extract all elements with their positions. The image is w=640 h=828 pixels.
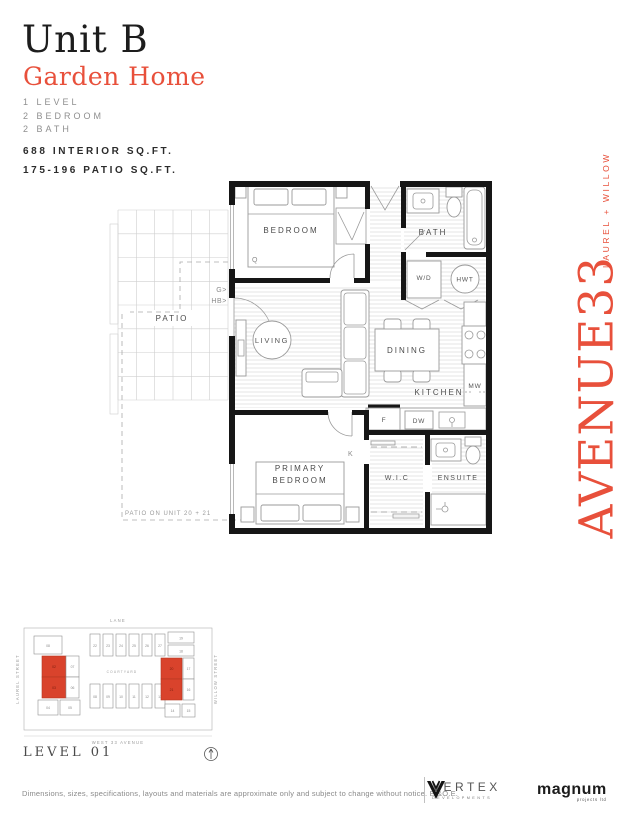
- patio-note: PATIO ON UNIT 20 + 21: [125, 511, 211, 517]
- tv-console: [236, 320, 246, 376]
- svg-text:27: 27: [158, 644, 162, 648]
- svg-text:25: 25: [132, 644, 136, 648]
- site-units-right: 19 18 20 17 21 16 14 15: [161, 632, 195, 717]
- site-plan: LANE LAUREL STREET WILLOW STREET WEST 33…: [16, 612, 220, 752]
- courtyard-label: COURTYARD: [107, 670, 138, 674]
- disclaimer-text: Dimensions, sizes, specifications, layou…: [22, 789, 458, 798]
- nightstand: [346, 507, 359, 522]
- bedroom: BEDROOM Q: [235, 185, 366, 278]
- toilet: [466, 446, 480, 464]
- svg-text:19: 19: [179, 637, 183, 641]
- hwt-label: HWT: [456, 277, 473, 284]
- street-willow: WILLOW STREET: [213, 654, 218, 704]
- svg-text:23: 23: [106, 644, 110, 648]
- king-label: K: [348, 451, 353, 458]
- nightstand: [241, 507, 254, 522]
- ensuite-vanity: [431, 439, 461, 461]
- site-units-bottom: 08 09 10 11 12 13: [90, 684, 165, 708]
- washer-dryer-label: W/D: [416, 275, 431, 282]
- svg-text:26: 26: [145, 644, 149, 648]
- pillow: [292, 189, 326, 205]
- dining-label: DINING: [387, 346, 427, 355]
- spec-bedroom: 2 BEDROOM: [23, 110, 104, 124]
- sofa-chaise: [302, 369, 342, 397]
- svg-text:14: 14: [171, 709, 175, 713]
- toilet-tank: [446, 187, 462, 197]
- shower: [431, 494, 486, 525]
- svg-text:08: 08: [46, 644, 50, 648]
- ensuite-label: ENSUITE: [438, 475, 479, 482]
- street-lane: LANE: [110, 618, 126, 623]
- living-label: LIVING: [255, 336, 289, 345]
- svg-text:03: 03: [52, 686, 56, 690]
- svg-text:12: 12: [145, 695, 149, 699]
- sofa: [341, 290, 369, 397]
- svg-text:16: 16: [187, 688, 191, 692]
- vertex-mark-icon: [424, 778, 448, 802]
- site-units-top: 22 23 24 25 26 27: [90, 634, 165, 656]
- interior-sqft: 688 INTERIOR SQ.FT.: [23, 142, 177, 161]
- floor-plan: PATIO PATIO ON UNIT 20 + 21 G> HB>: [108, 162, 528, 542]
- chair: [413, 370, 430, 382]
- svg-text:05: 05: [68, 706, 72, 710]
- svg-text:11: 11: [132, 695, 136, 699]
- site-units-left: 08 02 07 03 06 04 05: [34, 636, 80, 715]
- dishwasher-label: DW: [413, 418, 425, 425]
- svg-text:18: 18: [179, 650, 183, 654]
- chair: [384, 370, 401, 382]
- svg-text:24: 24: [119, 644, 123, 648]
- queen-label: Q: [252, 257, 258, 264]
- toilet-tank: [465, 437, 481, 446]
- magnum-logo: magnum projects ltd: [537, 781, 607, 802]
- wic-label: W.I.C: [385, 475, 410, 482]
- svg-text:22: 22: [93, 644, 97, 648]
- primary-label-1: PRIMARY: [275, 464, 325, 473]
- pillow: [261, 505, 299, 521]
- gas-label: G>: [216, 287, 227, 294]
- patio-label: PATIO: [156, 314, 189, 323]
- bedroom-label: BEDROOM: [263, 226, 318, 235]
- pillow: [303, 505, 341, 521]
- svg-text:10: 10: [119, 695, 123, 699]
- pillow: [254, 189, 288, 205]
- svg-text:17: 17: [187, 667, 191, 671]
- ensuite: ENSUITE: [431, 437, 486, 525]
- unit-subtitle: Garden Home: [23, 62, 206, 91]
- svg-text:07: 07: [71, 665, 75, 669]
- svg-text:21: 21: [170, 688, 174, 692]
- unit-specs: 1 LEVEL 2 BEDROOM 2 BATH: [23, 96, 104, 137]
- unit-title: Unit B: [22, 18, 149, 61]
- spec-bath: 2 BATH: [23, 123, 104, 137]
- hose-bib-label2: HB>: [211, 298, 227, 305]
- fridge-label: F: [382, 417, 387, 424]
- vertex-logo: VERTEX DEVELOPMENTS: [424, 777, 501, 803]
- compass-icon: [202, 745, 220, 763]
- microwave-label: MW: [468, 383, 481, 390]
- primary-door: [328, 412, 352, 436]
- toilet: [447, 197, 461, 217]
- kitchen-label: KITCHEN: [414, 388, 463, 397]
- level-label: LEVEL 01: [23, 745, 113, 760]
- svg-text:06: 06: [71, 686, 75, 690]
- svg-text:04: 04: [46, 706, 50, 710]
- stove: [462, 326, 488, 364]
- spec-level: 1 LEVEL: [23, 96, 104, 110]
- primary-bedroom: PRIMARY BEDROOM K: [241, 412, 359, 524]
- svg-text:02: 02: [52, 665, 56, 669]
- brochure-page: Unit B Garden Home 1 LEVEL 2 BEDROOM 2 B…: [0, 0, 640, 828]
- svg-text:15: 15: [187, 709, 191, 713]
- svg-text:08: 08: [93, 695, 97, 699]
- primary-label-2: BEDROOM: [272, 476, 327, 485]
- property-name: AVENUE33: [570, 289, 625, 539]
- svg-text:20: 20: [170, 667, 174, 671]
- street-laurel: LAUREL STREET: [16, 654, 20, 703]
- svg-text:09: 09: [106, 695, 110, 699]
